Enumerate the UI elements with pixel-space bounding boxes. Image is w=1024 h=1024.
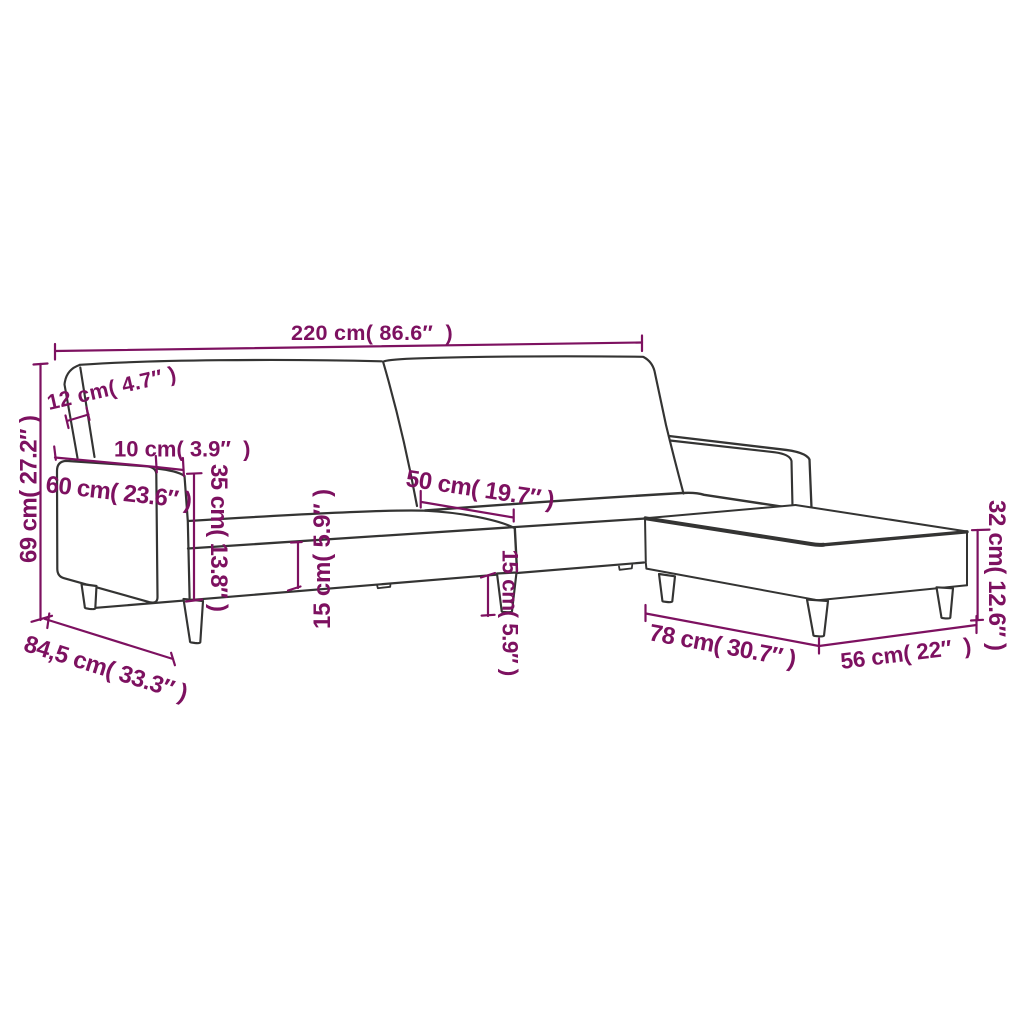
svg-text:32 cm( 12.6″ ): 32 cm( 12.6″ ) — [983, 500, 1010, 651]
svg-text:15 cm( 5.9″ ): 15 cm( 5.9″ ) — [309, 489, 336, 629]
svg-text:10 cm( 3.9″ ): 10 cm( 3.9″ ) — [114, 437, 251, 462]
svg-text:15 cm( 5.9″ ): 15 cm( 5.9″ ) — [498, 550, 523, 676]
svg-text:220 cm( 86.6″ ): 220 cm( 86.6″ ) — [291, 320, 453, 345]
svg-text:35 cm( 13.8″ ): 35 cm( 13.8″ ) — [205, 464, 232, 611]
svg-text:69 cm( 27.2″ ): 69 cm( 27.2″ ) — [15, 416, 42, 563]
